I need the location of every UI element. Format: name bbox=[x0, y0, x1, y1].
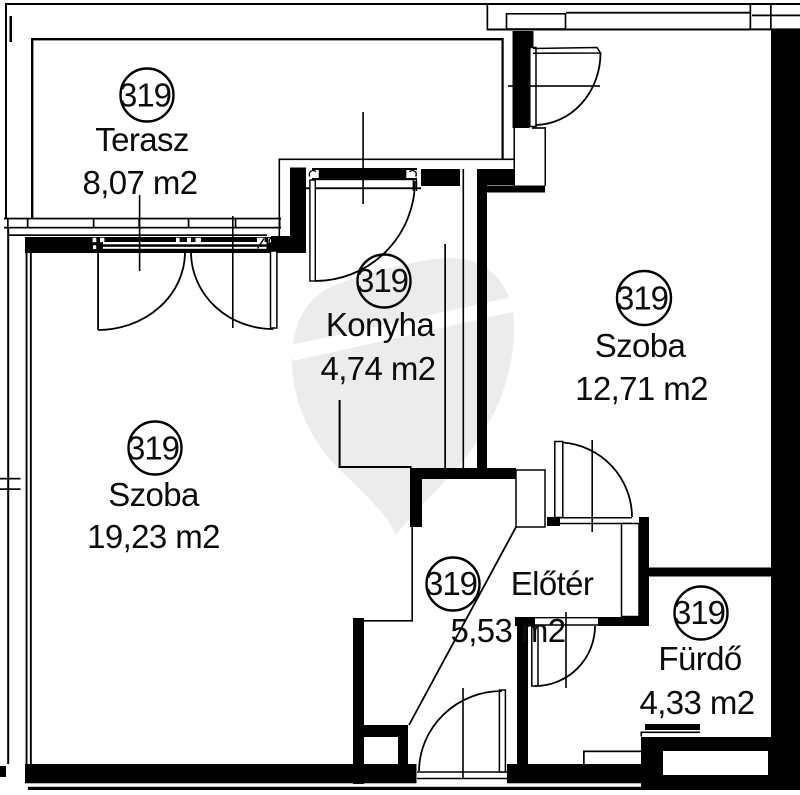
svg-text:319: 319 bbox=[119, 77, 171, 114]
svg-text:Fürdő: Fürdő bbox=[658, 640, 741, 677]
svg-text:8,07 m2: 8,07 m2 bbox=[82, 164, 197, 201]
svg-text:19,23 m2: 19,23 m2 bbox=[87, 518, 220, 555]
svg-text:Terasz: Terasz bbox=[95, 121, 189, 158]
svg-text:4,33 m2: 4,33 m2 bbox=[639, 684, 754, 721]
svg-text:12,71 m2: 12,71 m2 bbox=[575, 370, 708, 407]
svg-text:319: 319 bbox=[673, 594, 725, 631]
svg-text:5,53 m2: 5,53 m2 bbox=[450, 612, 565, 649]
svg-text:Előtér: Előtér bbox=[511, 565, 594, 602]
svg-text:Konyha: Konyha bbox=[326, 306, 436, 343]
svg-text:319: 319 bbox=[356, 262, 408, 299]
svg-text:Szoba: Szoba bbox=[108, 476, 200, 513]
svg-text:4,74 m2: 4,74 m2 bbox=[320, 350, 435, 387]
svg-text:319: 319 bbox=[425, 565, 477, 602]
svg-text:Szoba: Szoba bbox=[595, 327, 687, 364]
svg-text:319: 319 bbox=[127, 430, 179, 467]
svg-text:319: 319 bbox=[616, 280, 668, 317]
